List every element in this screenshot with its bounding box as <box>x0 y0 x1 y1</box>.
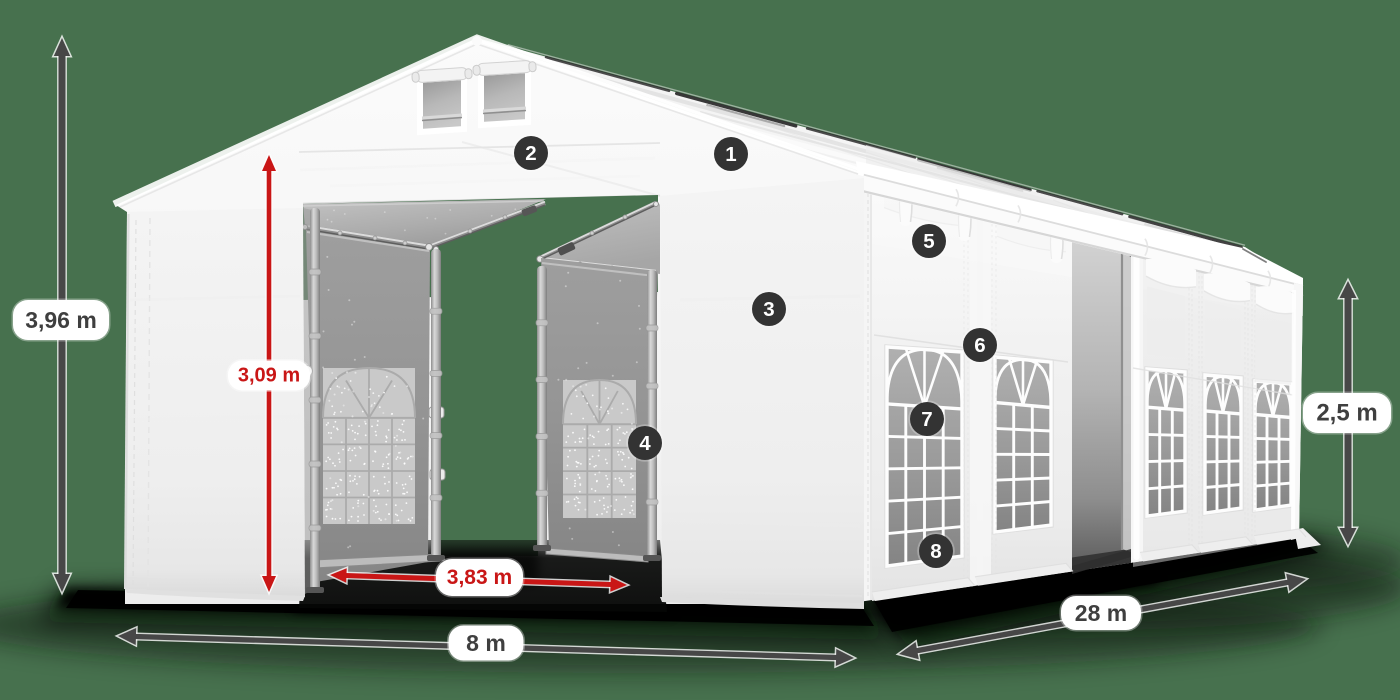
svg-text:3,09 m: 3,09 m <box>238 365 300 387</box>
svg-text:8 m: 8 m <box>466 630 506 656</box>
svg-text:7: 7 <box>921 408 932 431</box>
svg-text:6: 6 <box>974 334 985 357</box>
svg-text:3,83 m: 3,83 m <box>447 566 512 589</box>
svg-text:4: 4 <box>639 432 651 455</box>
svg-text:2,5 m: 2,5 m <box>1316 400 1377 427</box>
svg-text:28 m: 28 m <box>1075 600 1127 626</box>
svg-text:1: 1 <box>725 143 736 166</box>
svg-text:5: 5 <box>923 230 934 253</box>
svg-text:3: 3 <box>763 298 774 321</box>
svg-text:2: 2 <box>525 142 536 165</box>
svg-text:3,96 m: 3,96 m <box>25 307 97 333</box>
svg-text:8: 8 <box>930 540 941 563</box>
